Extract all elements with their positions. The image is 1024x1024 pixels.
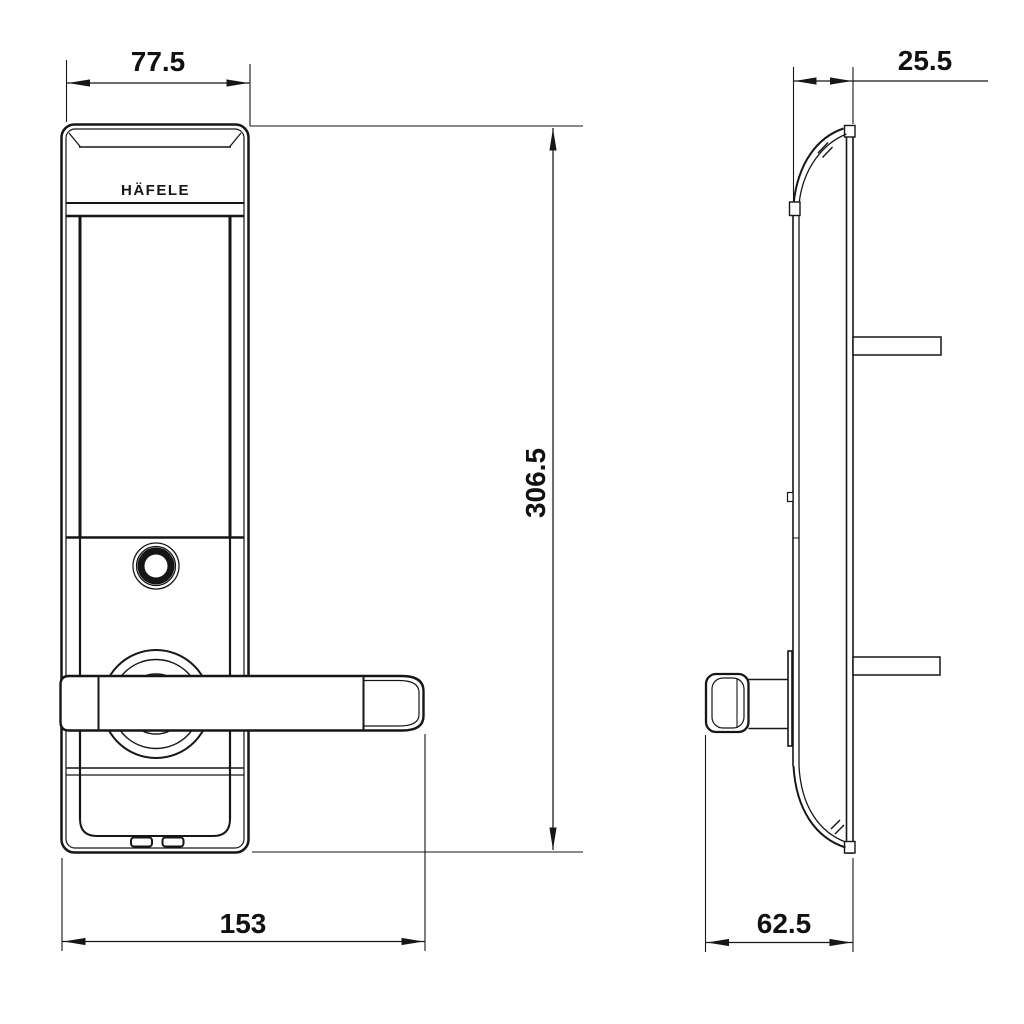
drawing-canvas: HÄFELE — [0, 0, 1024, 1024]
side-curve-end-cap — [790, 202, 801, 216]
dim-front-top-width: 77.5 — [67, 46, 251, 126]
front-body-outline — [62, 125, 249, 853]
front-chamfer-top-left — [69, 133, 81, 147]
side-view — [706, 126, 941, 854]
dim-label: 62.5 — [757, 908, 812, 939]
front-body-inner-outline — [66, 129, 244, 848]
brand-logo: HÄFELE — [121, 182, 190, 199]
dim-side-top-depth: 25.5 — [794, 45, 989, 200]
side-bottom-curve-outer — [794, 766, 846, 848]
arrowhead-right — [830, 77, 852, 84]
front-camera-eye — [133, 543, 179, 589]
arrowhead-right — [830, 939, 852, 946]
side-handle — [706, 651, 792, 746]
side-plate-top-cap — [845, 126, 856, 138]
side-bottom-curve-tick-1 — [831, 820, 840, 829]
front-lever-handle — [61, 676, 424, 731]
technical-drawing: HÄFELE — [0, 0, 1024, 1024]
front-bottom-inner-corner — [80, 819, 230, 836]
dim-label: 25.5 — [898, 45, 953, 76]
dim-side-total-depth: 62.5 — [706, 735, 854, 952]
side-upper-spindle — [853, 337, 941, 355]
side-lower-post — [853, 657, 940, 675]
arrowhead-right — [402, 938, 424, 945]
side-sensor-bump — [788, 493, 794, 502]
arrowhead-down — [549, 828, 556, 850]
bottom-slot-right — [163, 838, 184, 847]
arrowhead-up — [549, 129, 556, 151]
arrowhead-left — [707, 939, 729, 946]
front-chamfer-top-right — [230, 133, 242, 147]
side-back-plate — [847, 126, 854, 853]
side-bottom-curve-tick-2 — [835, 825, 844, 834]
arrowhead-right — [227, 79, 249, 86]
camera-black-ring — [141, 551, 171, 581]
dim-label: 77.5 — [131, 46, 186, 77]
side-handle-mount-edge — [788, 651, 792, 746]
bottom-slot-left — [131, 838, 152, 847]
handle-bar-outline — [61, 676, 424, 731]
arrowhead-left — [68, 79, 90, 86]
dim-label: 306.5 — [520, 448, 551, 518]
side-top-curve-inner — [799, 134, 847, 204]
arrowhead-left — [795, 77, 817, 84]
arrowhead-left — [64, 938, 86, 945]
dim-front-height: 306.5 — [250, 126, 583, 852]
dim-label: 153 — [220, 908, 267, 939]
side-plate-bottom-cap — [845, 842, 856, 854]
front-view: HÄFELE — [61, 125, 424, 853]
